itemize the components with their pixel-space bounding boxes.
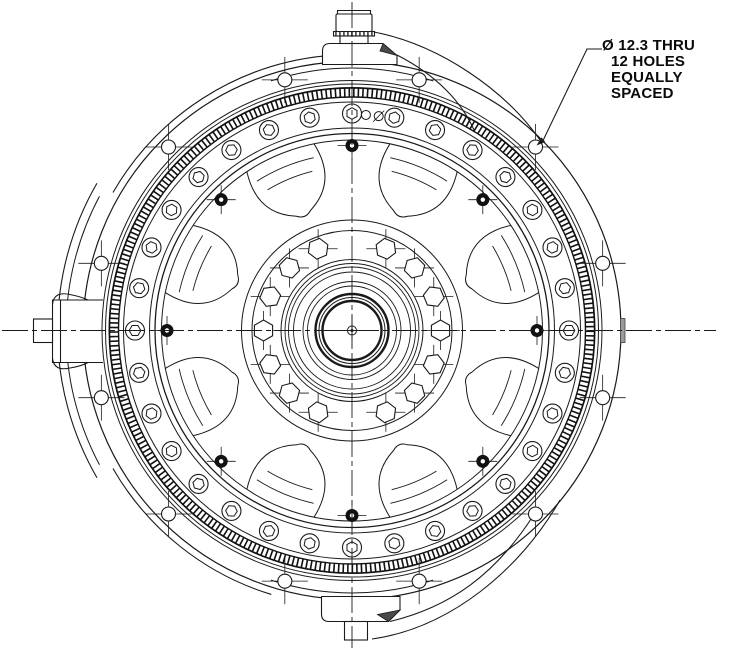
housing-top-boss: [323, 11, 398, 65]
left-boss-fill: [53, 300, 89, 363]
top-right-sweep-inner: [397, 55, 474, 130]
callout-line-4: SPACED: [602, 86, 695, 102]
callout-line-1: Ø 12.3 THRU: [602, 38, 695, 54]
bottom-drain-plug: [345, 622, 368, 641]
leader: [537, 49, 603, 146]
leader-line: [543, 49, 602, 140]
callout-line-3: EQUALLY: [602, 70, 695, 86]
callout-line-2: 12 HOLES: [602, 54, 695, 70]
breather-cap-body: [336, 14, 372, 32]
bottom-right-sweep-inner: [390, 516, 533, 622]
housing-lobe-arcs: [58, 56, 434, 595]
hole-callout: Ø 12.3 THRU 12 HOLES EQUALLY SPACED: [602, 38, 695, 102]
drawing-sheet: Ø 12.3 THRU 12 HOLES EQUALLY SPACED: [0, 0, 734, 650]
vent-holes: [361, 110, 384, 121]
breather-neck: [340, 36, 368, 44]
housing-left-boss: [34, 294, 104, 369]
